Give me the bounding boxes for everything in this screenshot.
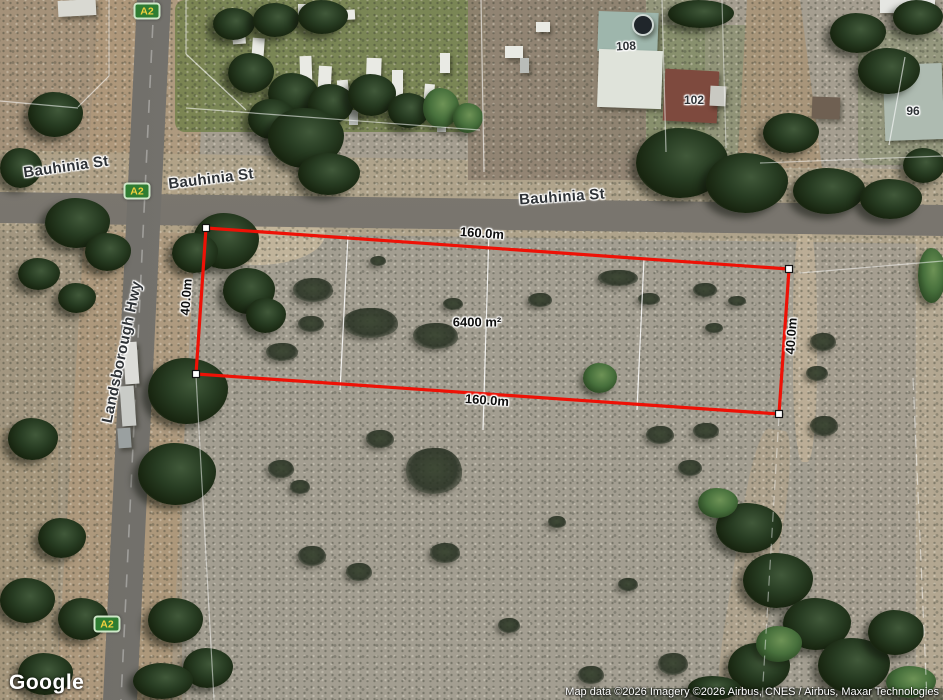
satellite-map[interactable]: Bauhinia St Bauhinia St Bauhinia St Land…	[0, 0, 943, 700]
measurement-right-depth: 40.0m	[782, 317, 800, 355]
house-number-102: 102	[684, 93, 704, 107]
measurement-left-depth: 40.0m	[177, 278, 195, 316]
measurement-top-width: 160.0m	[459, 224, 504, 242]
parcel-area-label: 6400 m²	[453, 315, 501, 330]
parcel-vertex-marker[interactable]	[203, 225, 210, 232]
route-badge-a2-middle: A2	[124, 183, 151, 200]
route-badge-a2-top: A2	[134, 3, 161, 20]
measurement-bottom-width: 160.0m	[464, 391, 509, 409]
cadastral-lines	[0, 0, 943, 700]
parcel-vertex-marker[interactable]	[193, 371, 200, 378]
overlay-lines	[0, 0, 943, 700]
map-attribution: Map data ©2026 Imagery ©2026 Airbus, CNE…	[565, 686, 939, 698]
house-number-96: 96	[906, 104, 919, 118]
route-badge-a2-bottom: A2	[94, 616, 121, 633]
parcel-vertex-marker[interactable]	[786, 266, 793, 273]
parcel-vertex-marker[interactable]	[776, 411, 783, 418]
house-number-108: 108	[616, 38, 637, 53]
google-logo[interactable]: Google	[9, 671, 84, 695]
